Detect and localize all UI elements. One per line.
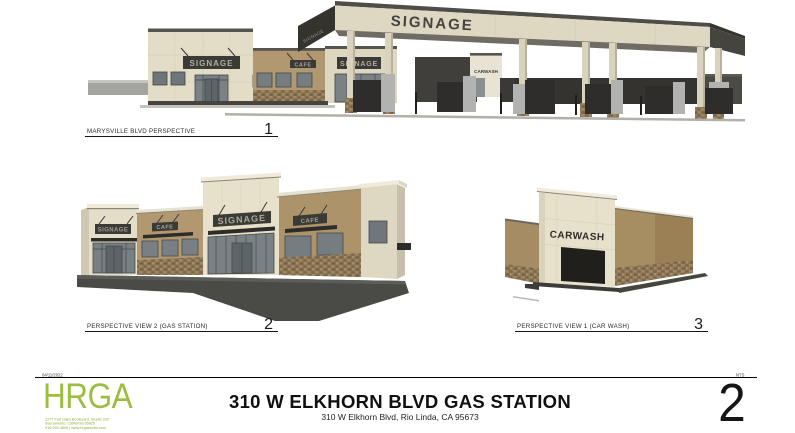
car-wash-perspective-rendering: CARWASH xyxy=(505,180,740,320)
view-label-1-text: MARYSVILLE BLVD PERSPECTIVE xyxy=(87,128,195,135)
right-tower xyxy=(359,180,411,279)
sheet-number: 2 xyxy=(706,376,758,430)
firm-address-line3: 916.993.4805 | www.hrgastudio.com xyxy=(45,425,109,429)
rear-tan-wall xyxy=(505,219,541,285)
view-label-3-line xyxy=(515,331,708,332)
site-wall xyxy=(88,80,148,95)
presentation-sheet: SIGNAGE CAFE SIGNAGE xyxy=(0,0,795,433)
view-label-3-text: PERSPECTIVE VIEW 1 (CAR WASH) xyxy=(517,323,629,330)
view-label-2: PERSPECTIVE VIEW 2 (GAS STATION) 2 xyxy=(85,314,278,332)
store-sign-text: SIGNAGE xyxy=(190,59,234,68)
cafe-facade: CAFE xyxy=(253,48,325,103)
cafe-section-right: CAFE xyxy=(277,185,363,277)
view-label-1-number: 1 xyxy=(264,121,273,139)
ground-mark xyxy=(513,296,539,302)
view-label-2-text: PERSPECTIVE VIEW 2 (GAS STATION) xyxy=(87,323,208,330)
marysville-blvd-perspective-rendering: SIGNAGE CAFE SIGNAGE xyxy=(85,0,765,125)
rear-sign-text: SIGNAGE xyxy=(340,61,378,68)
view-label-2-line xyxy=(85,331,278,332)
left-signage-tower: SIGNAGE xyxy=(81,204,139,275)
front-walk xyxy=(140,105,335,108)
center-signage-tower: SIGNAGE xyxy=(201,173,281,276)
project-title-block: 310 W ELKHORN BLVD GAS STATION 310 W Elk… xyxy=(198,392,602,422)
view-label-1: MARYSVILLE BLVD PERSPECTIVE 1 xyxy=(85,119,278,137)
carwash-small-sign-text: CARWASH xyxy=(474,69,498,74)
cafe-section-left: CAFE xyxy=(136,206,204,275)
view-label-3-number: 3 xyxy=(694,316,703,334)
carwash-tower: CARWASH xyxy=(537,188,617,288)
view-label-2-number: 2 xyxy=(264,316,273,334)
cafe-sign-text-left: CAFE xyxy=(156,224,173,231)
title-block-rule xyxy=(35,377,757,378)
building-base xyxy=(148,101,328,105)
store-facade: SIGNAGE xyxy=(148,29,267,104)
gas-station-perspective-rendering: SIGNAGE CAFE xyxy=(75,163,415,321)
view-label-1-line xyxy=(85,136,278,137)
tower-sign-text: SIGNAGE xyxy=(98,227,128,233)
ground-shadow xyxy=(225,113,745,122)
hrga-logo: HRGA xyxy=(43,379,132,414)
project-title: 310 W ELKHORN BLVD GAS STATION xyxy=(198,392,602,411)
side-tan-wall xyxy=(615,206,693,286)
firm-address: 2277 Fair Oaks Boulevard, Studio 220 Sac… xyxy=(45,417,109,430)
project-address: 310 W Elkhorn Blvd, Rio Linda, CA 95673 xyxy=(198,412,602,422)
cafe-sign-text: CAFE xyxy=(294,62,311,68)
view-label-3: PERSPECTIVE VIEW 1 (CAR WASH) 3 xyxy=(515,314,708,332)
